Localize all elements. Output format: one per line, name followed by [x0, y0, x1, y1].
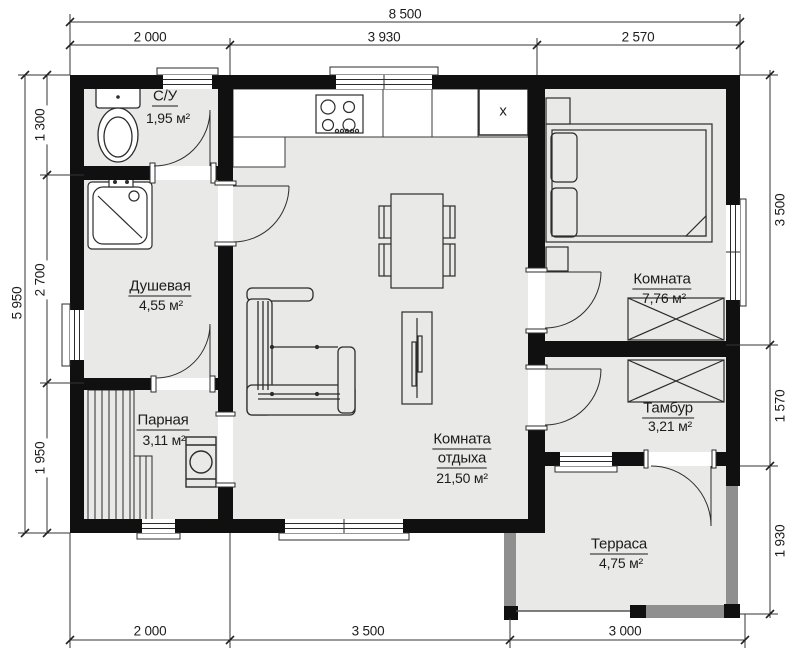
dim-top-3: 2 570 [622, 30, 655, 45]
toilet-icon [96, 86, 140, 162]
window-bedroom-right [726, 199, 746, 306]
wall-bedroom-vestibule [545, 341, 726, 357]
window-sauna-bottom [137, 519, 180, 539]
room-lounge-area: 21,50 м² [436, 470, 488, 486]
stove-icon [316, 95, 363, 133]
room-sauna-area: 3,11 м² [143, 432, 186, 448]
window-shower-left [62, 304, 84, 366]
window-vestibule-bottom [555, 452, 617, 472]
dim-top-total: 8 500 [389, 7, 422, 22]
dim-left-3: 1 950 [33, 439, 48, 478]
window-wc-top [157, 68, 218, 89]
floor-plan: 8 500 2 000 3 930 2 570 5 950 1 300 2 70… [0, 0, 800, 666]
dim-top-1: 2 000 [134, 30, 167, 45]
dim-bottom-2: 3 500 [352, 624, 385, 639]
tv-stand-icon [402, 312, 432, 404]
nightstand-icon [546, 247, 568, 271]
dim-left-2: 2 700 [33, 261, 48, 300]
nightstand-icon [546, 98, 570, 124]
window-kitchen-top [330, 67, 438, 89]
door-sauna-opening [216, 412, 235, 487]
kitchen-x-marker: x [499, 103, 506, 120]
room-terrace-area: 4,75 м² [599, 555, 643, 571]
sauna-heater-icon [186, 437, 216, 487]
room-lounge-name-2: отдыха [437, 450, 487, 469]
dim-right-1: 3 500 [773, 191, 788, 230]
room-shower-name: Душевая [128, 278, 191, 297]
floor-plan-drawing [0, 0, 800, 666]
dim-right-2: 1 570 [773, 387, 788, 426]
dim-bottom-1: 2 000 [134, 624, 167, 639]
wall-left [70, 75, 84, 533]
room-terrace-name: Терраса [590, 536, 648, 555]
shower-cabin-icon [88, 178, 152, 249]
room-wc-area: 1,95 м² [146, 110, 190, 126]
dim-left-1: 1 300 [33, 106, 48, 145]
room-vestibule-name: Тамбур [642, 400, 694, 419]
room-bedroom-area: 7,76 м² [642, 290, 686, 306]
room-bedroom-name: Комната [632, 271, 691, 290]
dim-right-3: 1 930 [773, 522, 788, 561]
dim-left-total: 5 950 [10, 284, 25, 323]
room-shower-area: 4,55 м² [139, 297, 183, 313]
window-living-bottom [279, 519, 409, 540]
room-lounge-name-1: Комната [432, 431, 491, 450]
room-wc-name: С/У [152, 88, 178, 107]
wardrobe-icon [628, 360, 724, 402]
bed-icon [546, 124, 712, 242]
room-sauna-name: Парная [136, 412, 189, 431]
room-vestibule-area: 3,21 м² [648, 418, 692, 434]
dim-top-2: 3 930 [368, 30, 401, 45]
dim-bottom-3: 3 000 [609, 624, 642, 639]
dining-table-icon [391, 194, 443, 288]
